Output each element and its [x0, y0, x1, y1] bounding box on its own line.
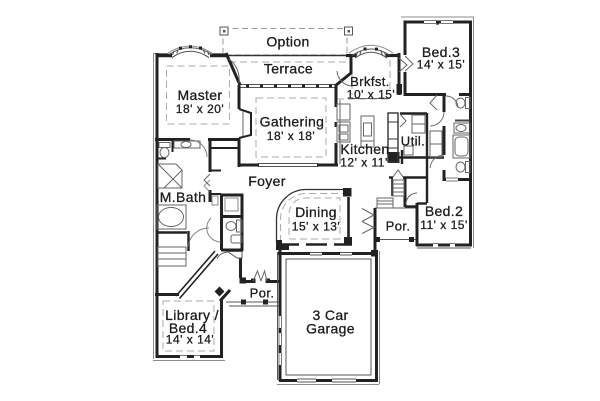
svg-text:Por.: Por. — [386, 219, 411, 234]
svg-text:18' x 18': 18' x 18' — [267, 129, 315, 143]
svg-text:Por.: Por. — [250, 286, 275, 301]
svg-text:Foyer: Foyer — [248, 173, 286, 189]
svg-text:15' x 13': 15' x 13' — [292, 220, 340, 234]
svg-text:Garage: Garage — [306, 321, 355, 337]
svg-text:14' x 15': 14' x 15' — [417, 58, 465, 72]
svg-text:M.Bath: M.Bath — [160, 189, 206, 205]
svg-text:Dining: Dining — [295, 204, 337, 220]
svg-text:18' x 20': 18' x 20' — [176, 102, 224, 116]
svg-text:Master: Master — [178, 87, 223, 103]
svg-text:11' x 15': 11' x 15' — [420, 218, 468, 232]
svg-text:12' x 11': 12' x 11' — [340, 156, 388, 170]
svg-text:Terrace: Terrace — [264, 61, 313, 77]
svg-text:Gathering: Gathering — [260, 114, 325, 130]
svg-text:10' x 15': 10' x 15' — [347, 88, 395, 102]
svg-text:14' x 14': 14' x 14' — [166, 333, 214, 347]
svg-text:Option: Option — [266, 34, 309, 50]
svg-text:Bed.2: Bed.2 — [425, 203, 463, 219]
svg-text:Util.: Util. — [401, 134, 425, 149]
